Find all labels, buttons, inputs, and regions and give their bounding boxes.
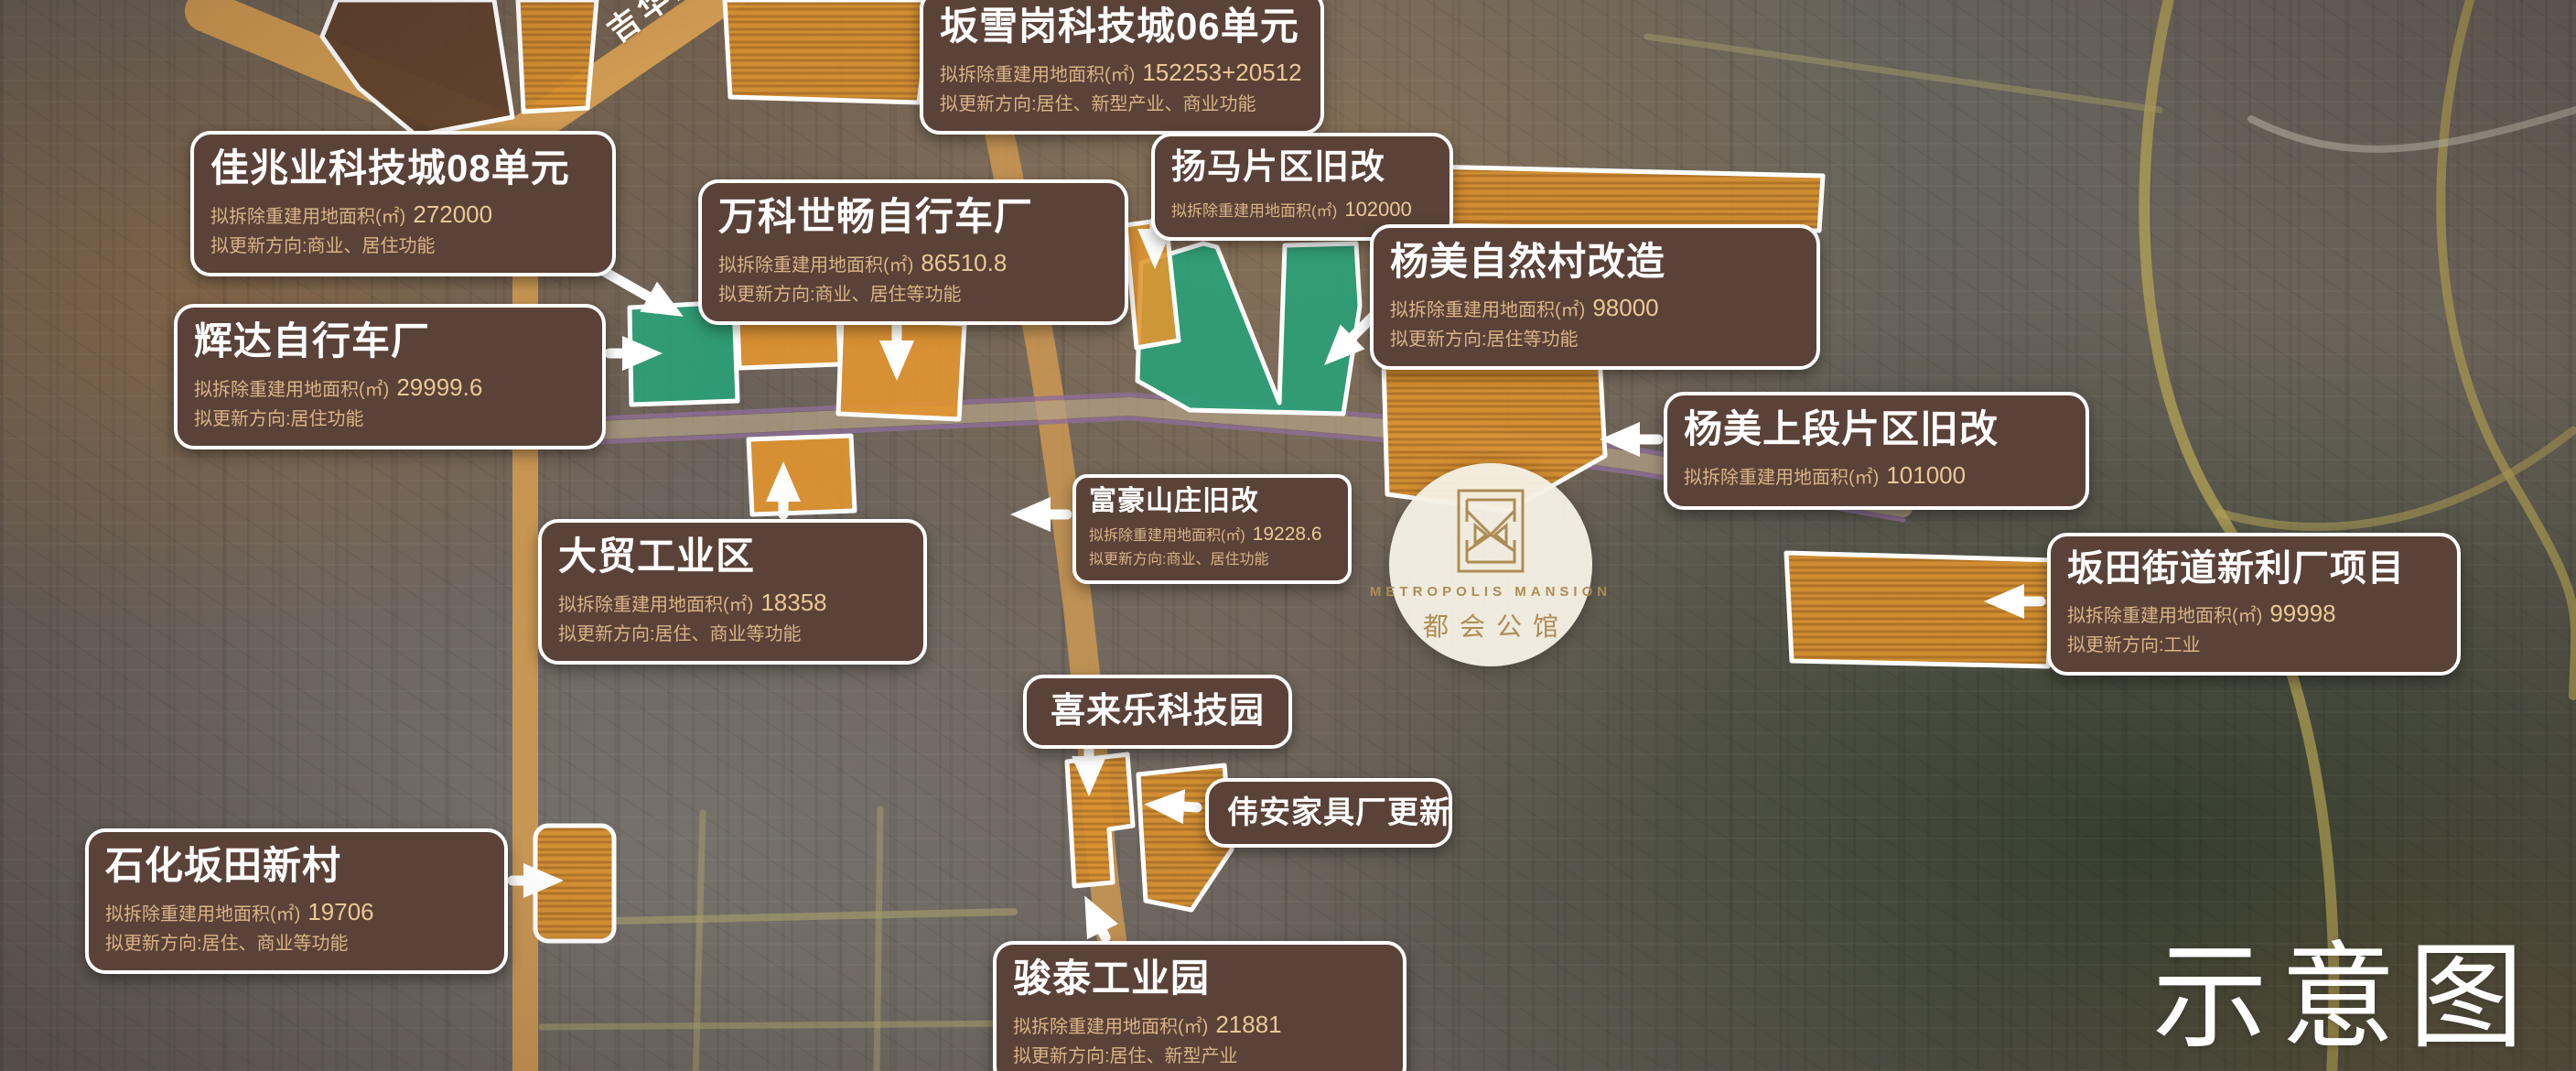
project-direction: 拟更新方向:居住、新型产业: [1013, 1043, 1386, 1070]
project-label-xinli: 坂田街道新利厂项目 拟拆除重建用地面积(㎡)99998 拟更新方向:工业: [2047, 533, 2461, 676]
parcel-orange-topcenter: [725, 0, 932, 103]
area-value: 152253+20512: [1142, 59, 1301, 86]
highway-east-2: [2441, 0, 2575, 696]
project-title: 佳兆业科技城08单元: [210, 146, 596, 191]
arrow-weian: [1166, 806, 1197, 807]
metropolis-mansion-logo-icon: [1455, 487, 1526, 575]
project-title: 杨美自然村改造: [1390, 239, 1800, 285]
area-value: 86510.8: [921, 249, 1007, 276]
area-label: 拟拆除重建用地面积(㎡): [940, 65, 1135, 85]
area-label: 拟拆除重建用地面积(㎡): [718, 255, 913, 276]
area-value: 99998: [2269, 600, 2335, 627]
parcel-orange-yangmei-top: [1424, 167, 1823, 231]
project-label-wanke-shichang: 万科世畅自行车厂 拟拆除重建用地面积(㎡)86510.8 拟更新方向:商业、居住…: [698, 179, 1128, 325]
area-label: 拟拆除重建用地面积(㎡): [1684, 468, 1879, 488]
area-value: 101000: [1886, 461, 1966, 489]
parcel-orange-xinli: [1786, 553, 2055, 666]
project-area: 拟拆除重建用地面积(㎡)19228.6: [1089, 520, 1335, 549]
project-title: 坂田街道新利厂项目: [2067, 547, 2441, 590]
project-area: 拟拆除重建用地面积(㎡)86510.8: [718, 245, 1108, 281]
project-title: 杨美上段片区旧改: [1684, 406, 2069, 452]
area-value: 19228.6: [1253, 524, 1322, 545]
project-title: 万科世畅自行车厂: [718, 194, 1108, 240]
parcel-dark-topleft: [322, 0, 512, 135]
project-direction: 拟更新方向:居住、商业等功能: [105, 930, 488, 957]
parcel-orange-xilaile: [1067, 754, 1133, 886]
developer-logo-badge: METROPOLIS MANSION 都会公馆: [1389, 463, 1592, 666]
map-stage: METROPOLIS MANSION 都会公馆 吉华路 坂雪岗科技城06单元 拟…: [0, 0, 2576, 1071]
project-area: 拟拆除重建用地面积(㎡)101000: [1684, 458, 2069, 493]
minor-road-4: [877, 809, 880, 1071]
minor-road-3: [695, 813, 703, 1071]
parcel-orange-topleft: [518, 0, 597, 112]
area-value: 29999.6: [396, 373, 482, 401]
project-area: 拟拆除重建用地面积(㎡)99998: [2067, 596, 2441, 632]
area-label: 拟拆除重建用地面积(㎡): [105, 904, 300, 925]
project-area: 拟拆除重建用地面积(㎡)102000: [1171, 194, 1433, 224]
area-label: 拟拆除重建用地面积(㎡): [1013, 1017, 1208, 1037]
project-direction: 拟更新方向:居住等功能: [1390, 326, 1800, 353]
watermark-text: 示意图: [2152, 904, 2537, 1071]
project-title: 富豪山庄旧改: [1089, 485, 1335, 517]
area-value: 98000: [1592, 294, 1658, 321]
project-direction: 拟更新方向:商业、居住功能: [210, 233, 596, 260]
project-area: 拟拆除重建用地面积(㎡)18358: [558, 585, 907, 621]
parcel-orange-damao: [749, 436, 855, 514]
area-label: 拟拆除重建用地面积(㎡): [2067, 606, 2262, 626]
area-value: 102000: [1344, 198, 1411, 221]
logo-name-cn: 都会公馆: [1423, 607, 1569, 644]
project-title: 骏泰工业园: [1013, 956, 1386, 1001]
project-area: 拟拆除重建用地面积(㎡)98000: [1390, 290, 1800, 326]
project-direction: 拟更新方向:居住、商业等功能: [558, 621, 907, 648]
area-label: 拟拆除重建用地面积(㎡): [558, 595, 753, 615]
project-label-banxuegang-06: 坂雪岗科技城06单元 拟拆除重建用地面积(㎡)152253+20512 拟更新方…: [920, 0, 1324, 135]
project-label-xilaile: 喜来乐科技园: [1023, 675, 1292, 749]
project-label-juntai: 骏泰工业园 拟拆除重建用地面积(㎡)21881 拟更新方向:居住、新型产业: [993, 941, 1407, 1071]
project-label-weian: 伟安家具厂更新: [1205, 778, 1452, 848]
project-label-yangmei-upper: 杨美上段片区旧改 拟拆除重建用地面积(㎡)101000: [1664, 392, 2089, 510]
highway-east-link: [2219, 430, 2573, 527]
project-label-jiazhaoye-08: 佳兆业科技城08单元 拟拆除重建用地面积(㎡)272000 拟更新方向:商业、居…: [190, 131, 616, 276]
project-direction: 拟更新方向:商业、居住等功能: [718, 281, 1108, 308]
project-title: 石化坂田新村: [105, 843, 488, 889]
area-value: 21881: [1215, 1011, 1281, 1038]
parcel-orange-wanke-1: [738, 319, 840, 368]
project-label-damao: 大贸工业区 拟拆除重建用地面积(㎡)18358 拟更新方向:居住、商业等功能: [538, 519, 927, 665]
project-label-fuhao: 富豪山庄旧改 拟拆除重建用地面积(㎡)19228.6 拟更新方向:商业、居住功能: [1072, 474, 1352, 584]
area-value: 272000: [413, 200, 492, 228]
project-area: 拟拆除重建用地面积(㎡)19706: [105, 894, 488, 930]
project-title: 大贸工业区: [558, 534, 907, 579]
project-area: 拟拆除重建用地面积(㎡)272000: [210, 197, 596, 233]
project-direction: 拟更新方向:工业: [2067, 632, 2441, 659]
area-value: 19706: [307, 898, 373, 925]
parcel-orange-shihua: [535, 826, 614, 941]
project-direction: 拟更新方向:居住、新型产业、商业功能: [940, 91, 1304, 118]
area-label: 拟拆除重建用地面积(㎡): [194, 380, 389, 400]
project-label-huida: 辉达自行车厂 拟拆除重建用地面积(㎡)29999.6 拟更新方向:居住功能: [174, 304, 606, 449]
overpass-east: [2251, 110, 2576, 149]
minor-road-5: [1647, 37, 2160, 110]
minor-road-2: [542, 1023, 1016, 1027]
project-area: 拟拆除重建用地面积(㎡)21881: [1013, 1007, 1386, 1043]
project-title: 坂雪岗科技城06单元: [940, 4, 1304, 49]
project-direction: 拟更新方向:居住功能: [194, 406, 586, 433]
project-area: 拟拆除重建用地面积(㎡)29999.6: [194, 370, 586, 406]
area-label: 拟拆除重建用地面积(㎡): [1171, 202, 1337, 220]
project-title: 伟安家具厂更新: [1227, 795, 1430, 831]
project-label-yangmei-village: 杨美自然村改造 拟拆除重建用地面积(㎡)98000 拟更新方向:居住等功能: [1370, 224, 1820, 370]
project-title: 喜来乐科技园: [1045, 691, 1270, 732]
project-label-shihua: 石化坂田新村 拟拆除重建用地面积(㎡)19706 拟更新方向:居住、商业等功能: [85, 828, 508, 974]
project-direction: 拟更新方向:商业、居住功能: [1089, 549, 1335, 571]
project-area: 拟拆除重建用地面积(㎡)152253+20512: [940, 55, 1304, 91]
area-value: 18358: [760, 589, 826, 616]
area-label: 拟拆除重建用地面积(㎡): [1390, 300, 1585, 320]
area-label: 拟拆除重建用地面积(㎡): [1089, 528, 1245, 544]
project-title: 扬马片区旧改: [1171, 147, 1433, 189]
project-title: 辉达自行车厂: [194, 319, 586, 364]
logo-name-en: METROPOLIS MANSION: [1370, 584, 1611, 600]
area-label: 拟拆除重建用地面积(㎡): [210, 207, 405, 227]
